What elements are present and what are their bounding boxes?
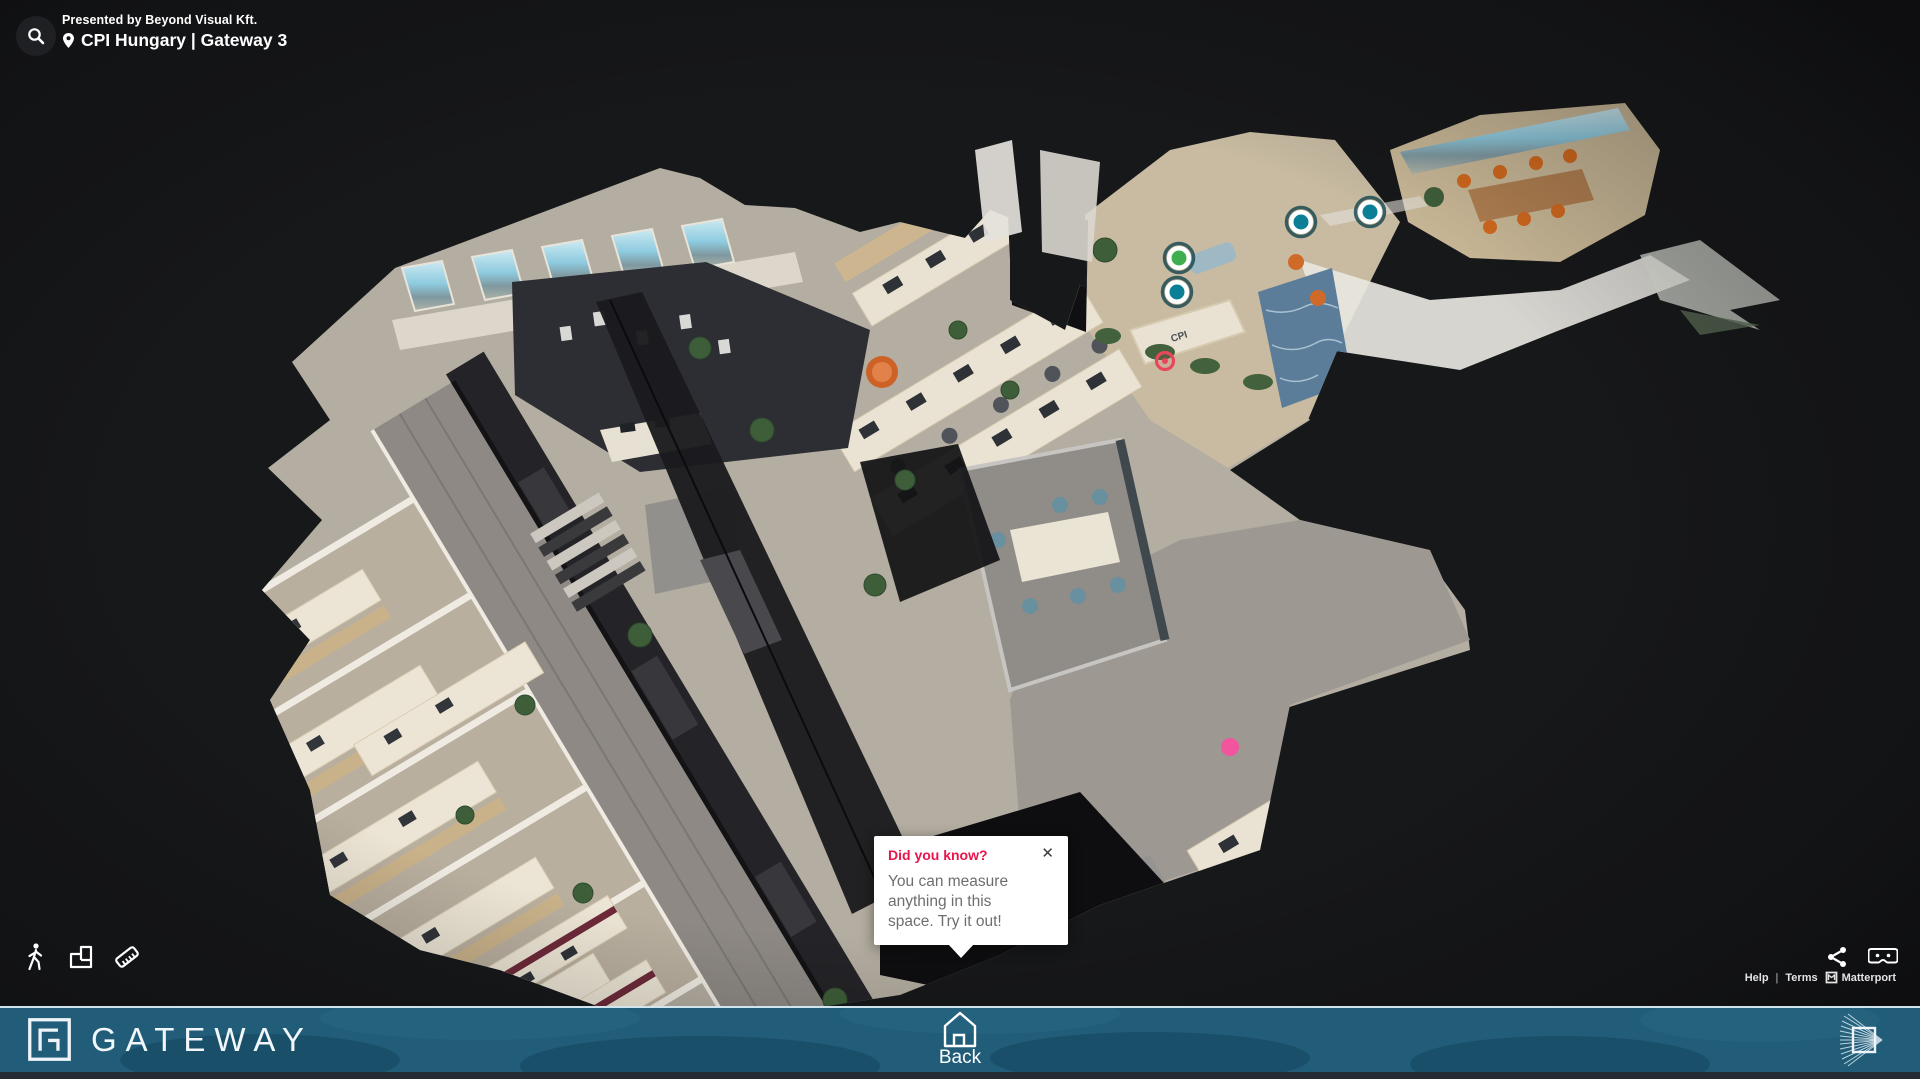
back-label: Back bbox=[937, 1047, 983, 1069]
viewer-stage: CPI Presented by Beyon bbox=[0, 0, 1920, 1079]
measure-tool-button[interactable] bbox=[112, 940, 142, 974]
tooltip-close-icon[interactable]: ✕ bbox=[1033, 847, 1054, 861]
mattertag-marker[interactable] bbox=[1163, 278, 1192, 307]
legal-divider: | bbox=[1776, 972, 1779, 984]
mattertag-marker[interactable] bbox=[1165, 244, 1194, 273]
share-icon bbox=[1825, 945, 1849, 969]
matterport-label[interactable]: Matterport bbox=[1842, 972, 1896, 984]
home-icon bbox=[937, 1009, 983, 1049]
search-icon bbox=[27, 27, 45, 45]
search-button[interactable] bbox=[16, 16, 56, 56]
floorplan-view-button[interactable] bbox=[66, 940, 96, 974]
matterport-logo-icon bbox=[1825, 971, 1838, 984]
did-you-know-tooltip: Did you know? ✕ You can measure anything… bbox=[874, 836, 1068, 945]
presented-by-label: Presented by Beyond Visual Kft. bbox=[62, 13, 257, 27]
tooltip-title: Did you know? bbox=[888, 847, 988, 863]
vr-mode-button[interactable] bbox=[1868, 940, 1898, 974]
back-button[interactable]: Back bbox=[937, 1009, 983, 1069]
vr-goggles-icon bbox=[1868, 946, 1898, 968]
space-title-row: CPI Hungary | Gateway 3 bbox=[62, 30, 287, 51]
gateway-wordmark: GATEWAY bbox=[91, 1021, 313, 1059]
beyond-visual-logo[interactable] bbox=[1836, 1012, 1892, 1068]
tooltip-arrow bbox=[948, 944, 974, 958]
floorplan-icon bbox=[68, 944, 94, 970]
measure-ruler-icon bbox=[113, 943, 141, 971]
tooltip-body: You can measure anything in this space. … bbox=[888, 872, 1038, 932]
waypoint-marker[interactable] bbox=[1157, 353, 1174, 370]
help-link[interactable]: Help bbox=[1745, 972, 1769, 984]
view-toolbar bbox=[20, 940, 142, 974]
walk-mode-button[interactable] bbox=[20, 940, 50, 974]
gateway-brand[interactable]: GATEWAY bbox=[26, 1016, 313, 1063]
mattertag-marker[interactable] bbox=[1356, 198, 1385, 227]
terms-link[interactable]: Terms bbox=[1785, 972, 1817, 984]
location-pin-icon bbox=[62, 32, 75, 49]
mattertag-marker[interactable] bbox=[1287, 208, 1316, 237]
gateway-logo-icon bbox=[26, 1016, 73, 1063]
footer-bar: GATEWAY Back bbox=[0, 1006, 1920, 1079]
matterport-link[interactable]: Matterport bbox=[1825, 971, 1896, 984]
walk-icon bbox=[24, 942, 46, 972]
viewer-actions bbox=[1822, 940, 1898, 974]
space-title: CPI Hungary | Gateway 3 bbox=[81, 30, 287, 51]
share-button[interactable] bbox=[1822, 940, 1852, 974]
legal-links: Help | Terms Matterport bbox=[1745, 971, 1896, 984]
footer-bottom-strip bbox=[0, 1072, 1920, 1079]
